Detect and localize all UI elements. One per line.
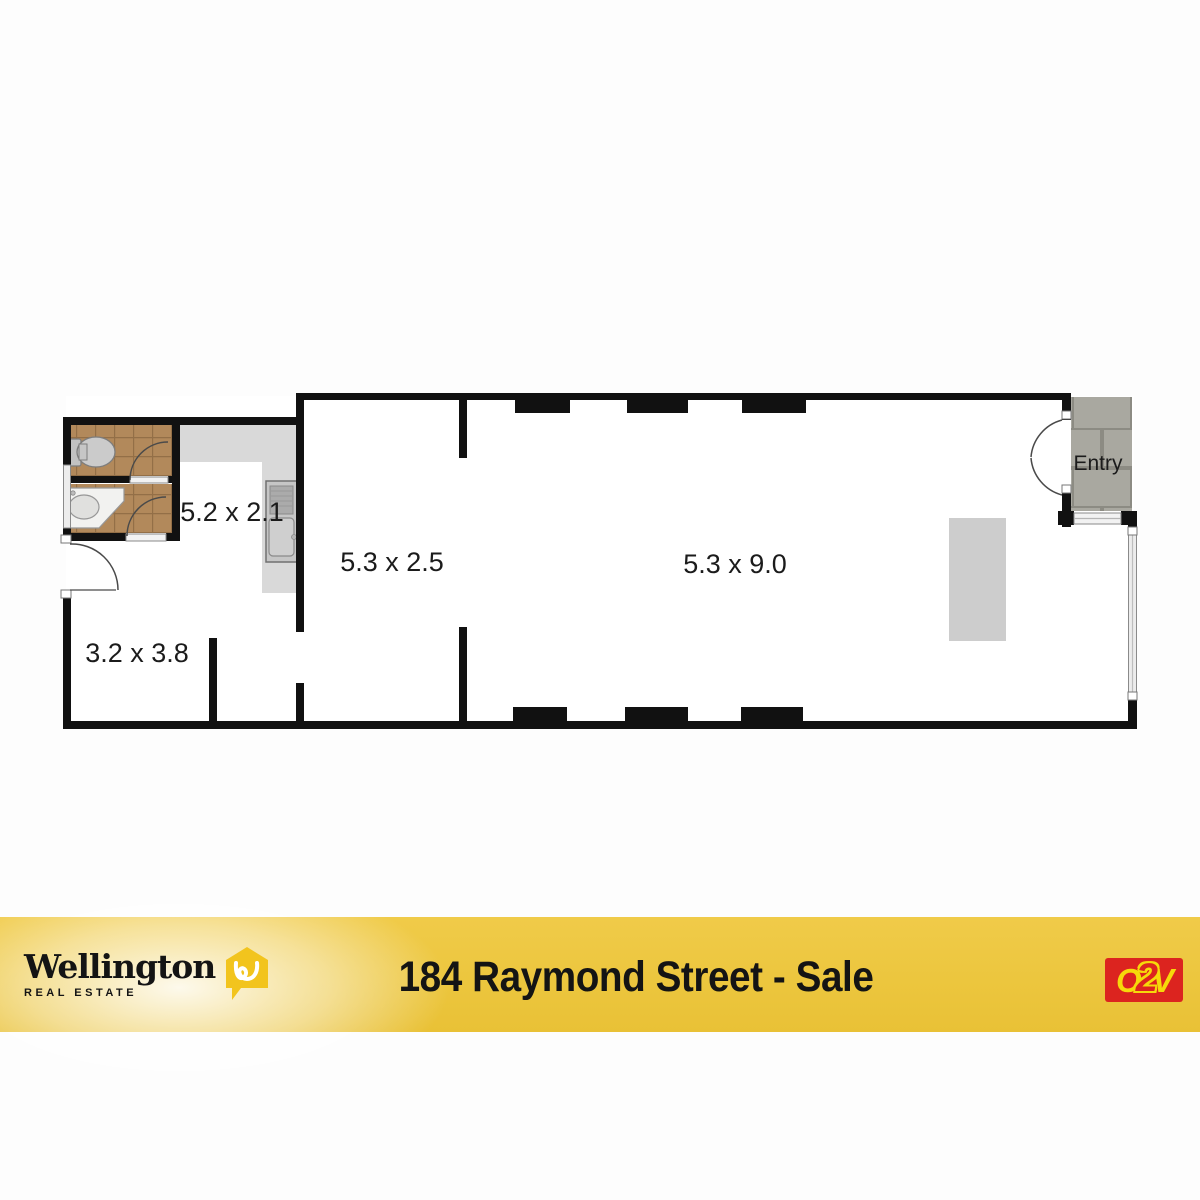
agency-text: Wellington REAL ESTATE	[24, 950, 215, 999]
wall-kitchen-right-stub	[296, 683, 304, 729]
wall-pier	[741, 707, 803, 721]
room-label: 5.2 x 2.1	[180, 497, 284, 527]
island-bench	[949, 518, 1006, 641]
door-jamb	[1062, 411, 1071, 419]
wall-top-main	[296, 393, 1062, 400]
wall-top-left-section	[63, 417, 304, 425]
door-sill	[130, 477, 168, 483]
wall-left	[63, 417, 71, 465]
wall-bath-divider	[63, 476, 130, 483]
wall-pier	[515, 399, 570, 413]
wellington-house-icon	[225, 946, 269, 1002]
footer-banner: Wellington REAL ESTATE 184 Raymond Stree…	[0, 917, 1200, 1032]
wall-bath-right	[172, 417, 180, 541]
wall-divider-bottom-stub	[459, 627, 467, 729]
wall-right	[1128, 700, 1137, 729]
wall-pier	[742, 399, 806, 413]
wall-divider-top-stub	[459, 393, 467, 458]
wall-front-room	[209, 638, 217, 729]
wall-left	[63, 590, 71, 729]
o2v-logo: O2V	[1105, 958, 1183, 1002]
wall-pier	[625, 707, 688, 721]
toilet-icon	[66, 437, 115, 467]
page: 5.2 x 2.1 5.3 x 2.5 5.3 x 9.0 3.2 x 3.8 …	[0, 0, 1200, 1200]
room-label: 5.3 x 9.0	[683, 549, 787, 579]
window-left-wall	[64, 465, 71, 528]
room-label: 3.2 x 3.8	[85, 638, 189, 668]
wall-pier	[513, 707, 567, 721]
room-label: 5.3 x 2.5	[340, 547, 444, 577]
agency-tagline: REAL ESTATE	[24, 987, 215, 999]
door-jamb	[1062, 485, 1071, 493]
door-jamb	[61, 590, 71, 598]
door-sill	[126, 534, 166, 541]
o2v-letter: 2	[1136, 958, 1156, 998]
agency-name: Wellington	[24, 950, 215, 984]
wall-pier	[627, 399, 688, 413]
wall-kitchen-right	[296, 393, 304, 632]
kitchen-counter-top	[180, 425, 296, 462]
entry-threshold-block	[1058, 511, 1074, 525]
door-jamb	[1128, 692, 1137, 700]
door-jamb	[61, 535, 71, 543]
door-jamb	[1128, 527, 1137, 535]
agency-logo: Wellington REAL ESTATE	[24, 950, 269, 1002]
wall-bath-bottom	[63, 533, 126, 541]
wall-bottom	[63, 721, 1137, 729]
banner-title: 184 Raymond Street - Sale	[399, 953, 874, 1002]
entry-label: Entry	[1073, 452, 1123, 475]
